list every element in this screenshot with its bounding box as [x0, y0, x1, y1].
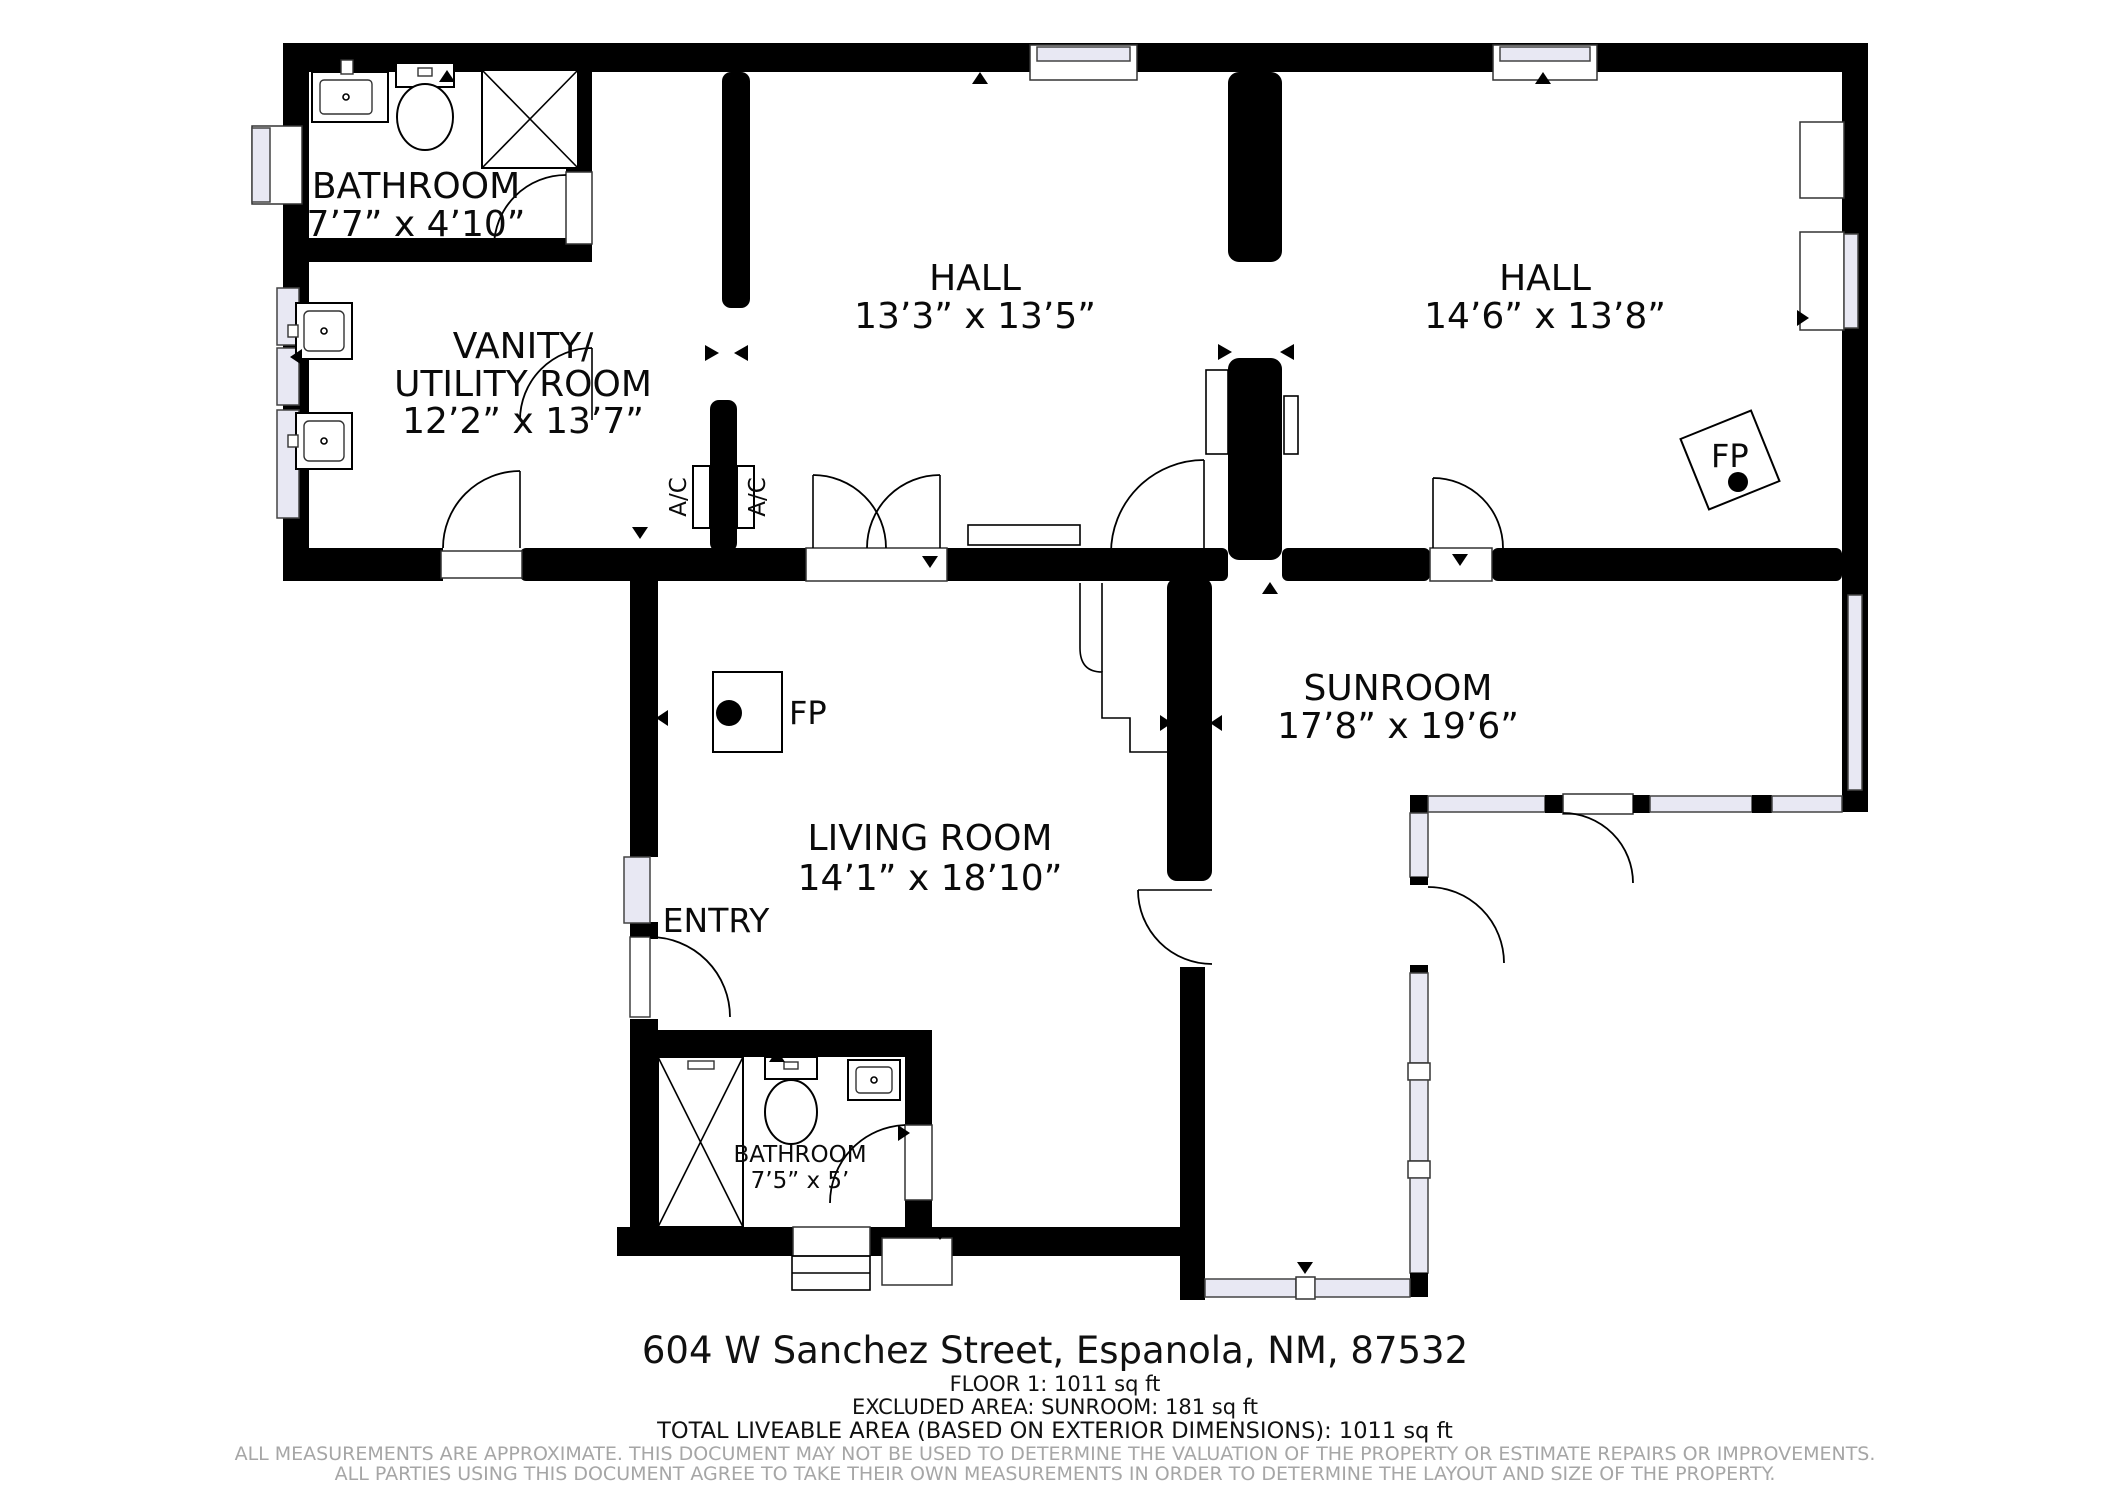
window-post	[1410, 795, 1428, 813]
arrow-icon	[1218, 344, 1232, 360]
room-dims-hall-left: 13’3” x 13’5”	[854, 296, 1096, 337]
room-name-hall-right: HALL	[1499, 258, 1591, 299]
window-niche	[1800, 232, 1844, 330]
sink-basin	[304, 311, 344, 351]
fireplace-dot	[1728, 472, 1748, 492]
room-name-living: LIVING ROOM	[808, 818, 1053, 859]
door-opening	[905, 1125, 932, 1200]
window	[1205, 1279, 1296, 1297]
door-arc	[650, 937, 730, 1017]
fireplace-hall: FP	[1681, 411, 1780, 510]
door-arc	[867, 475, 940, 548]
window	[1772, 796, 1842, 812]
floor-plan-page: FP FP BATHROOM 7’7” x 4’10” VANITY/	[0, 0, 2110, 1492]
window-post	[1410, 965, 1428, 973]
window	[1410, 1178, 1428, 1273]
toilet-bowl	[765, 1080, 817, 1144]
arrow-icon	[734, 345, 748, 361]
closet-outline	[1206, 370, 1228, 454]
wall-segment	[710, 400, 737, 552]
wall-segment	[630, 1030, 932, 1057]
window	[252, 128, 270, 202]
window	[1500, 47, 1590, 61]
window-mullion	[1408, 1063, 1430, 1080]
stairs-landing	[968, 525, 1080, 545]
door-arc	[813, 475, 886, 548]
door-arc	[443, 471, 520, 548]
sink-basin	[856, 1067, 892, 1093]
room-dims-bathroom2: 7’5” x 5’	[751, 1168, 850, 1194]
room-dims-living: 14’1” x 18’10”	[798, 858, 1063, 899]
porch	[882, 1238, 952, 1285]
ac-unit	[693, 466, 710, 528]
wall-segment	[1492, 548, 1842, 581]
window	[1410, 1080, 1428, 1161]
wall-segment	[630, 578, 658, 857]
excluded-area-line: EXCLUDED AREA: SUNROOM: 181 sq ft	[852, 1395, 1258, 1419]
window	[1428, 796, 1545, 812]
arrow-icon	[1262, 582, 1278, 594]
arrow-icon	[705, 345, 719, 361]
wall-segment	[617, 1227, 793, 1256]
address-line: 604 W Sanchez Street, Espanola, NM, 8753…	[642, 1329, 1468, 1372]
toilet-flush	[784, 1062, 798, 1069]
sink-basin	[320, 80, 372, 114]
wall-segment	[1228, 358, 1282, 560]
fireplace-label: FP	[1711, 437, 1749, 475]
sink-basin	[304, 421, 344, 461]
closet-outline	[1284, 396, 1298, 454]
entry-label: ENTRY	[663, 901, 771, 940]
floor-plan-drawing: FP FP BATHROOM 7’7” x 4’10” VANITY/	[0, 0, 2110, 1492]
room-name-bathroom1: BATHROOM	[312, 166, 520, 207]
wall-segment	[1228, 72, 1282, 262]
window-mullion	[1296, 1277, 1315, 1299]
floor-area-line: FLOOR 1: 1011 sq ft	[950, 1372, 1161, 1396]
wall-segment	[1282, 548, 1430, 581]
door-sill	[806, 548, 947, 581]
window	[1848, 595, 1862, 790]
room-dims-sunroom: 17’8” x 19’6”	[1277, 706, 1519, 747]
door-arc	[1433, 478, 1503, 548]
room-dims-hall-right: 14’6” x 13’8”	[1424, 296, 1666, 337]
room-name-bathroom2: BATHROOM	[733, 1142, 866, 1168]
wall-segment	[283, 548, 443, 581]
window-niche	[1800, 122, 1844, 198]
wall-segment	[1167, 578, 1212, 881]
wall-segment	[520, 548, 813, 581]
wall-segment	[905, 1030, 932, 1130]
fireplace-living: FP	[713, 672, 827, 752]
window-post	[1545, 795, 1563, 813]
total-area-line: TOTAL LIVEABLE AREA (BASED ON EXTERIOR D…	[656, 1418, 1453, 1444]
room-name-vanity-1: VANITY/	[453, 326, 594, 367]
disclaimer-line-1: ALL MEASUREMENTS ARE APPROXIMATE. THIS D…	[235, 1443, 1876, 1465]
window	[1410, 973, 1428, 1063]
window	[1037, 47, 1130, 61]
toilet-flush	[418, 68, 432, 76]
door-arc	[1111, 460, 1204, 553]
toilet-bowl	[397, 84, 453, 150]
arrow-icon	[632, 527, 648, 539]
arrow-icon	[1280, 344, 1294, 360]
door-arc	[1428, 887, 1504, 963]
window-post	[1633, 795, 1650, 813]
arrow-icon	[972, 72, 988, 84]
shower-head	[688, 1061, 714, 1069]
wall-segment	[940, 548, 1228, 581]
door-arc	[1138, 890, 1212, 964]
room-dims-bathroom1: 7’7” x 4’10”	[307, 204, 526, 245]
room-dims-vanity: 12’2” x 13’7”	[402, 401, 644, 442]
door-sill	[441, 551, 522, 578]
window	[1650, 796, 1752, 812]
disclaimer-line-2: ALL PARTIES USING THIS DOCUMENT AGREE TO…	[335, 1463, 1776, 1485]
fireplace-label: FP	[789, 694, 827, 732]
sink-faucet	[288, 435, 298, 447]
window	[1410, 813, 1428, 877]
wall-segment	[722, 72, 750, 308]
window-post	[1410, 1273, 1428, 1297]
door-opening	[793, 1227, 870, 1256]
room-name-sunroom: SUNROOM	[1304, 668, 1493, 709]
arrow-icon	[1297, 1262, 1313, 1274]
window-mullion	[1408, 1161, 1430, 1178]
fireplace-dot	[716, 700, 742, 726]
sink-faucet	[341, 60, 353, 74]
room-labels: BATHROOM 7’7” x 4’10” VANITY/ UTILITY RO…	[307, 166, 1666, 1194]
door-opening	[566, 172, 592, 244]
footer: 604 W Sanchez Street, Espanola, NM, 8753…	[235, 1329, 1876, 1485]
door-arc	[1563, 813, 1633, 883]
window-post	[1752, 795, 1772, 813]
sink-faucet	[288, 325, 298, 337]
door-sill	[1563, 794, 1633, 814]
room-name-vanity-2: UTILITY ROOM	[394, 364, 652, 405]
stairs-outline	[1080, 583, 1167, 752]
window	[624, 857, 650, 923]
ac-label: A/C	[666, 477, 692, 517]
window	[1844, 234, 1858, 328]
window-post	[1410, 877, 1428, 885]
window	[1315, 1279, 1410, 1297]
ac-label: A/C	[745, 477, 771, 517]
room-name-hall-left: HALL	[929, 258, 1021, 299]
door-leaf	[630, 937, 650, 1017]
